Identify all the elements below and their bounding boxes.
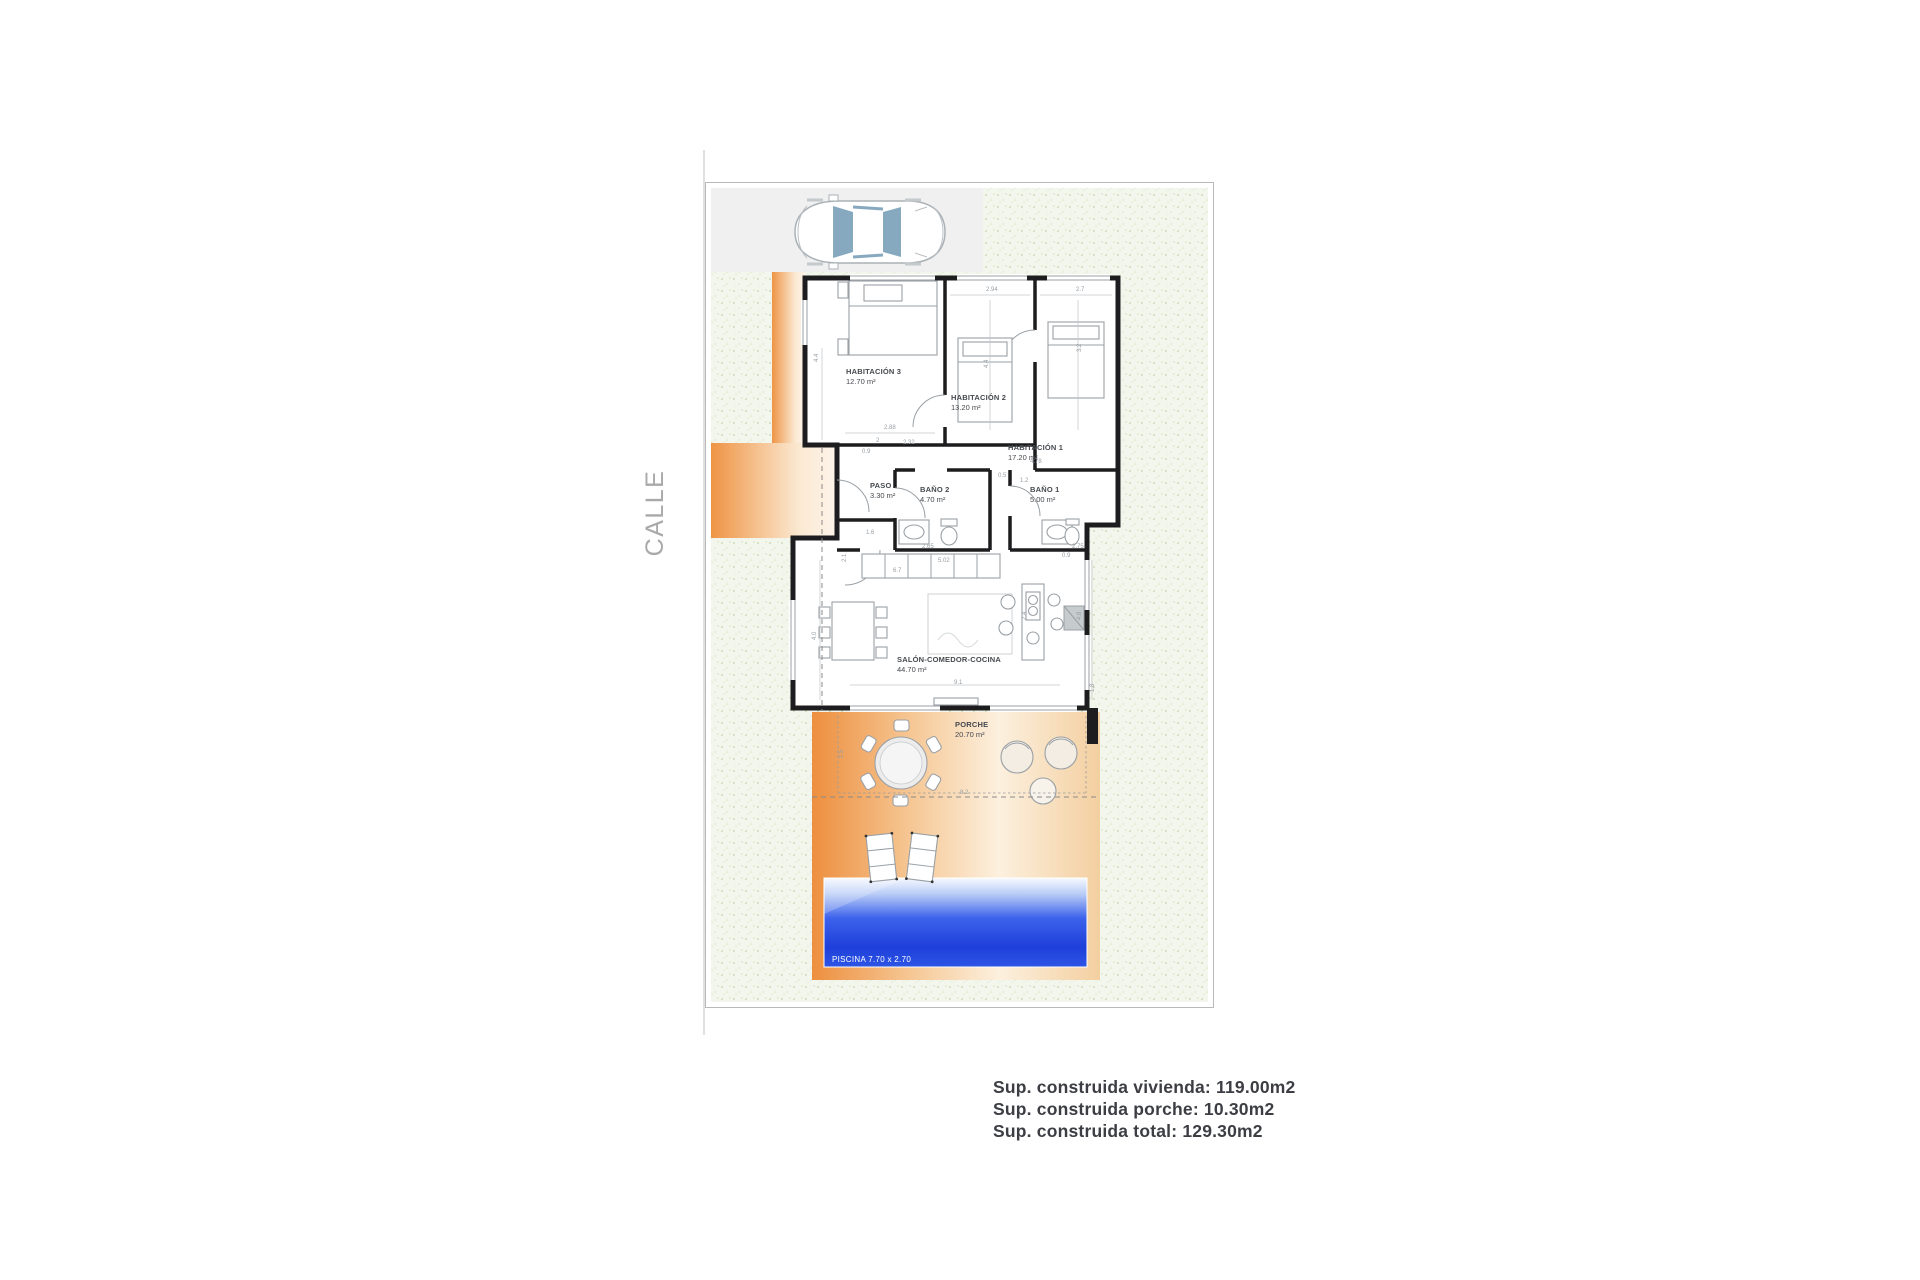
site-plan: PISCINA 7.70 x 2.70 bbox=[705, 182, 1214, 1008]
bed-habitacion-1 bbox=[1048, 322, 1104, 398]
dimension-label: 2.65 bbox=[922, 544, 934, 550]
dimension-label: 0.9 bbox=[1062, 553, 1071, 559]
dimension-label: 2.5 bbox=[839, 749, 845, 758]
floor-plan-drawing: PISCINA 7.70 x 2.70 bbox=[711, 188, 1208, 1002]
room-area-bano2: 4.70 m² bbox=[920, 495, 946, 504]
dimension-label: 4.4 bbox=[814, 353, 820, 362]
dimension-label: 1.2 bbox=[1020, 478, 1029, 484]
dimension-label: 0.9 bbox=[862, 449, 871, 455]
car-rear-window bbox=[883, 207, 901, 257]
room-label-porche: PORCHE bbox=[955, 720, 988, 729]
floor-plan-page: CALLE bbox=[0, 0, 1920, 1280]
stool bbox=[1051, 618, 1063, 630]
room-area-salon: 44.70 m² bbox=[897, 665, 927, 674]
entrance-court bbox=[711, 443, 837, 538]
dimension-label: 2.94 bbox=[986, 287, 998, 293]
room-area-bano1: 5.00 m² bbox=[1030, 495, 1056, 504]
bed-habitacion-3 bbox=[838, 281, 937, 355]
room-label-bano2: BAÑO 2 bbox=[920, 485, 950, 494]
dimension-label: 5.02 bbox=[938, 558, 950, 564]
room-label-habitacion1: HABITACIÓN 1 bbox=[1008, 443, 1063, 452]
room-label-salon: SALÓN-COMEDOR-COCINA bbox=[897, 655, 1001, 664]
car-windshield bbox=[833, 206, 853, 258]
porch-post bbox=[1087, 708, 1098, 744]
room-area-porche: 20.70 m² bbox=[955, 730, 985, 739]
side-table bbox=[1030, 778, 1056, 804]
tv-unit bbox=[934, 698, 978, 705]
car-illustration bbox=[795, 195, 945, 269]
room-label-paso: PASO bbox=[870, 481, 892, 490]
dimension-label: 2.7 bbox=[1076, 287, 1085, 293]
room-area-habitacion3: 12.70 m² bbox=[846, 377, 876, 386]
dimension-label: 0.5 bbox=[998, 473, 1007, 479]
dimension-label: 4.0 bbox=[812, 631, 818, 640]
dimension-label: 6.7 bbox=[893, 568, 902, 574]
room-area-habitacion2: 13.20 m² bbox=[951, 403, 981, 412]
lounge-chair bbox=[1045, 737, 1077, 769]
dimension-label: 1.8 bbox=[1090, 683, 1096, 692]
dining-table bbox=[832, 602, 874, 660]
street-name-label: CALLE bbox=[638, 438, 672, 588]
dimension-label: 1.6 bbox=[866, 530, 875, 536]
dimension-label: 4.4 bbox=[984, 359, 990, 368]
dimension-label: 2.88 bbox=[884, 425, 896, 431]
bathroom1-fixtures bbox=[1042, 519, 1079, 545]
dimension-label: 4.8 bbox=[1077, 611, 1083, 620]
pool-size-label: PISCINA 7.70 x 2.70 bbox=[832, 955, 911, 964]
bathroom2-fixtures bbox=[899, 519, 957, 545]
dimension-label: 8.2 bbox=[960, 790, 969, 796]
room-area-paso: 3.30 m² bbox=[870, 491, 896, 500]
summary-line-total: Sup. construida total: 129.30m2 bbox=[993, 1120, 1295, 1142]
area-summary: Sup. construida vivienda: 119.00m2 Sup. … bbox=[993, 1076, 1295, 1143]
entrance-path bbox=[772, 272, 805, 443]
dimension-label: 2.75 bbox=[1072, 544, 1084, 550]
lounge-chair bbox=[1001, 741, 1033, 773]
dimension-label: 2.4 bbox=[1022, 611, 1028, 620]
dimension-label: 2.32 bbox=[903, 440, 915, 446]
dimension-label: 2.1 bbox=[842, 553, 848, 562]
dimension-label: 3.2 bbox=[1077, 343, 1083, 352]
dimension-label: 4.78 bbox=[1030, 459, 1042, 465]
room-label-bano1: BAÑO 1 bbox=[1030, 485, 1060, 494]
summary-line-vivienda: Sup. construida vivienda: 119.00m2 bbox=[993, 1076, 1295, 1098]
stool bbox=[1048, 594, 1060, 606]
room-label-habitacion2: HABITACIÓN 2 bbox=[951, 393, 1006, 402]
dimension-label: 9.1 bbox=[954, 680, 963, 686]
summary-line-porche: Sup. construida porche: 10.30m2 bbox=[993, 1098, 1295, 1120]
room-label-habitacion3: HABITACIÓN 3 bbox=[846, 367, 901, 376]
